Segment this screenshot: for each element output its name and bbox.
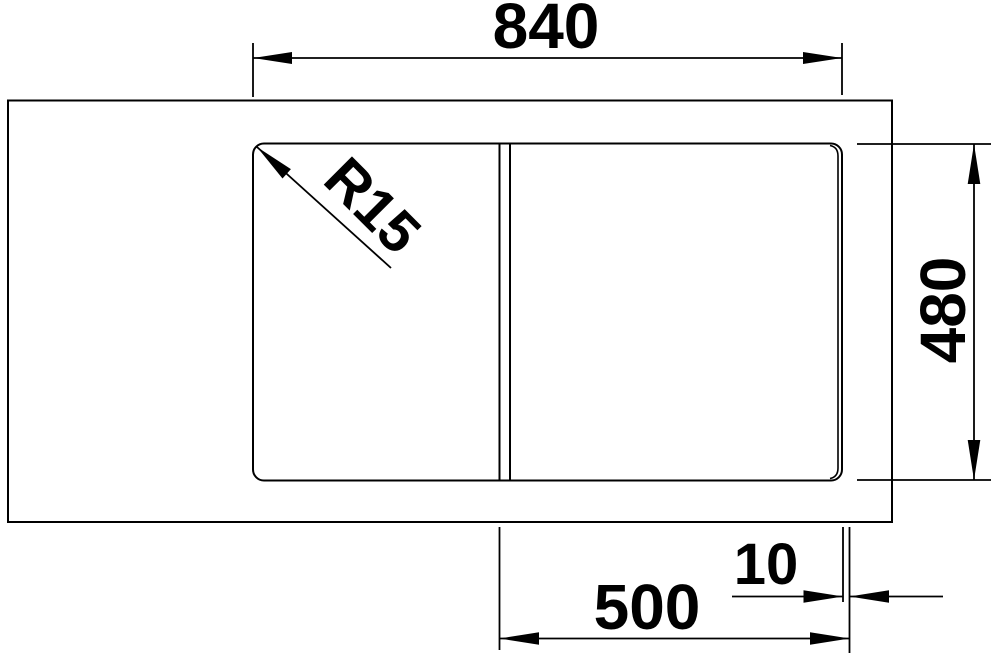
arrowhead-radius-leader <box>257 147 291 179</box>
dimension-label-bottom-edge-offset: 10 <box>734 536 799 594</box>
arrowhead-480-bottom <box>968 440 981 480</box>
outer-outline <box>8 101 892 523</box>
arrowhead-840-right <box>803 52 842 64</box>
arrowhead-10-right <box>850 590 890 603</box>
arrowhead-500-right <box>810 632 850 645</box>
arrowhead-480-top <box>968 144 981 184</box>
dimension-label-right-height: 480 <box>911 257 975 364</box>
sink-technical-drawing <box>0 0 999 663</box>
dimension-lines <box>253 43 991 653</box>
arrowhead-500-left <box>500 632 540 645</box>
drawing-outlines <box>8 101 892 523</box>
dimension-label-bottom-bowl-width: 500 <box>594 575 701 639</box>
arrowhead-840-left <box>253 52 292 64</box>
arrowhead-10-left <box>804 590 844 603</box>
bowl-inner-wall <box>830 146 838 479</box>
technical-drawing-page: 840 480 500 10 R15 <box>0 0 999 663</box>
dimension-arrowheads <box>253 52 980 645</box>
dimension-label-top-width: 840 <box>493 0 600 58</box>
